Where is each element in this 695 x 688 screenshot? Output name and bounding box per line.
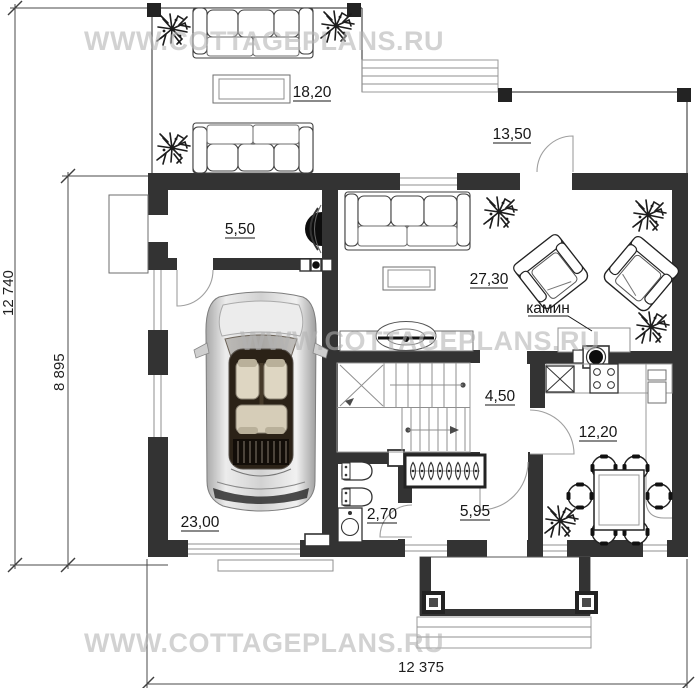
room-label-kitchen: 12,20: [579, 424, 618, 441]
plant: [633, 200, 666, 231]
boiler-garage-door-opening: [177, 257, 213, 271]
terrace-door-opening: [520, 172, 572, 191]
post: [147, 3, 161, 17]
watermark-bottom: WWW.COTTAGEPLANS.RU: [84, 628, 444, 658]
bathroom-door-opening: [398, 503, 412, 539]
post: [498, 88, 512, 102]
fridge: [648, 370, 666, 380]
exterior-landing: [109, 195, 148, 273]
fridge: [648, 382, 666, 403]
window: [147, 375, 169, 437]
dining-set: [567, 455, 673, 546]
porch-post: [422, 591, 445, 614]
window: [543, 539, 567, 558]
room-label-entry: 5,95: [460, 503, 490, 520]
kitchen-fixtures: [545, 364, 673, 546]
porch-post: [575, 591, 598, 614]
room-label-hall: 4,50: [485, 388, 516, 405]
garage-apron: [218, 560, 333, 571]
entrance-door-opening: [487, 539, 527, 558]
washbasin: [338, 508, 362, 542]
stove: [590, 364, 618, 393]
dimension-left-inner: 8 895: [51, 353, 68, 391]
boiler-exterior-door-opening: [147, 215, 169, 242]
sofa: [193, 123, 313, 173]
window: [643, 539, 667, 558]
dimension-left-outer: 12 740: [0, 270, 17, 316]
stair-arrow-head: [345, 398, 354, 406]
room-label-terrace-top: 18,20: [293, 84, 332, 101]
boiler-garage-door-swing: [177, 270, 213, 306]
dining-table: [594, 470, 644, 530]
plant: [636, 312, 669, 343]
watermark-top: WWW.COTTAGEPLANS.RU: [84, 26, 444, 56]
floor-plan-page: 12 740 8 895 12 375: [0, 0, 695, 688]
plant: [484, 197, 517, 228]
staircase: [337, 363, 470, 452]
garage-car: [194, 292, 328, 511]
toilet: [342, 462, 372, 480]
room-label-boiler: 5,50: [225, 221, 256, 238]
sink: [546, 366, 574, 392]
window: [147, 270, 169, 330]
sofa: [345, 192, 470, 250]
watermark-middle: WWW.COTTAGEPLANS.RU: [240, 326, 600, 356]
room-label-terrace-side: 13,50: [493, 126, 532, 143]
coffee-table: [383, 267, 435, 290]
window: [405, 539, 447, 558]
wardrobe: [405, 455, 485, 487]
room-label-bathroom: 2,70: [367, 506, 398, 523]
kitchen-door-opening: [530, 408, 545, 454]
dimension-bottom: 12 375: [398, 659, 444, 676]
stair-direction-arrow: [450, 426, 459, 434]
vent-box: [305, 534, 330, 546]
window: [400, 172, 457, 191]
coffee-table: [213, 75, 290, 103]
wall-fixture-strip: [300, 259, 332, 271]
floor-plan-drawing: 12 740 8 895 12 375: [0, 0, 695, 688]
terrace-door-swing: [537, 136, 573, 172]
plant: [545, 506, 578, 537]
room-label-living: 27,30: [470, 271, 509, 288]
entry-hall-door-opening: [480, 451, 528, 465]
plant: [157, 133, 190, 164]
toilet: [342, 488, 372, 506]
room-label-garage: 23,00: [181, 514, 220, 531]
armchair: [602, 235, 681, 314]
fireplace-label: камин: [526, 300, 570, 317]
garage-gate: [188, 539, 300, 558]
post: [677, 88, 691, 102]
